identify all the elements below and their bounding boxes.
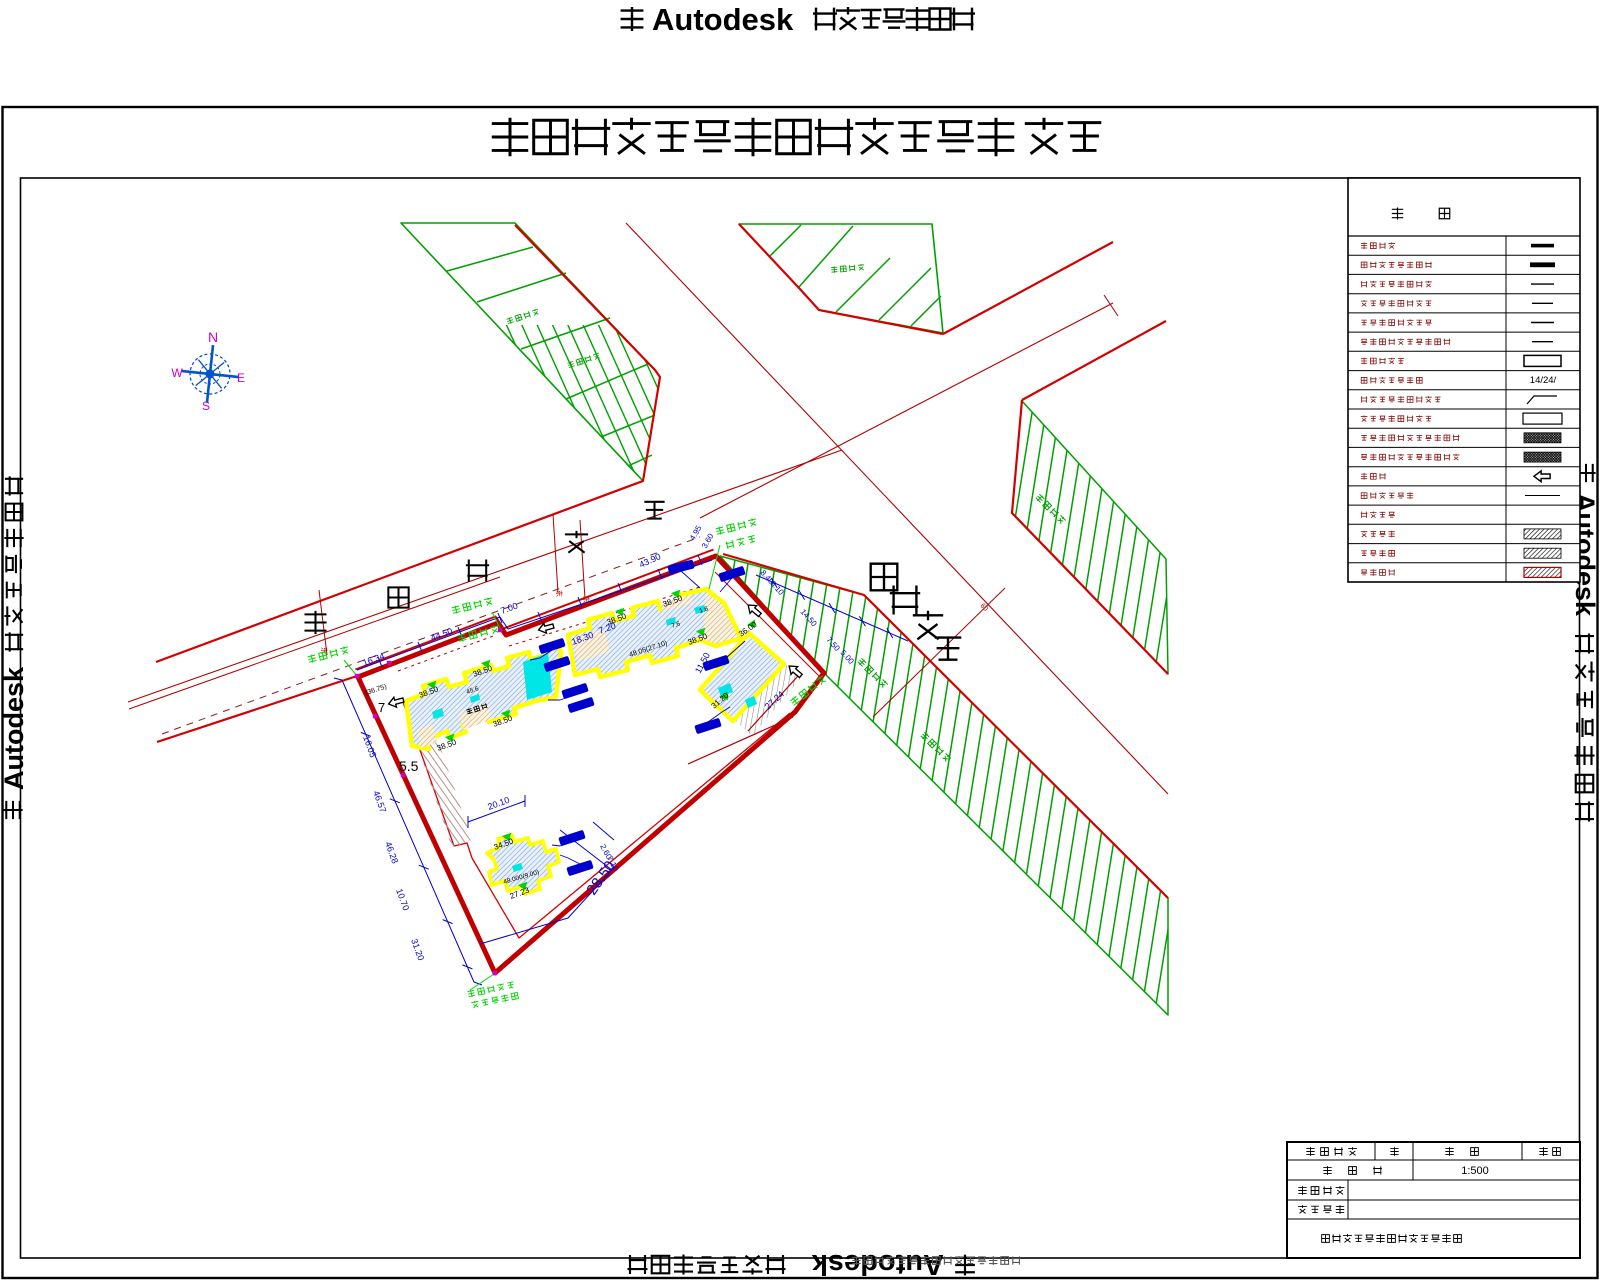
svg-text:7: 7 [378,700,385,715]
svg-text:14/24/: 14/24/ [1530,375,1557,386]
svg-text:Autodesk: Autodesk [652,2,794,37]
svg-text:W: W [171,366,183,380]
svg-text:5.5: 5.5 [399,758,419,774]
svg-text:1:500: 1:500 [1461,1165,1489,1177]
svg-text:Autodesk: Autodesk [0,666,29,790]
svg-text:S: S [202,399,210,413]
svg-text:N: N [208,329,218,345]
svg-text:E: E [237,371,245,385]
svg-text:东: 东 [555,590,564,597]
